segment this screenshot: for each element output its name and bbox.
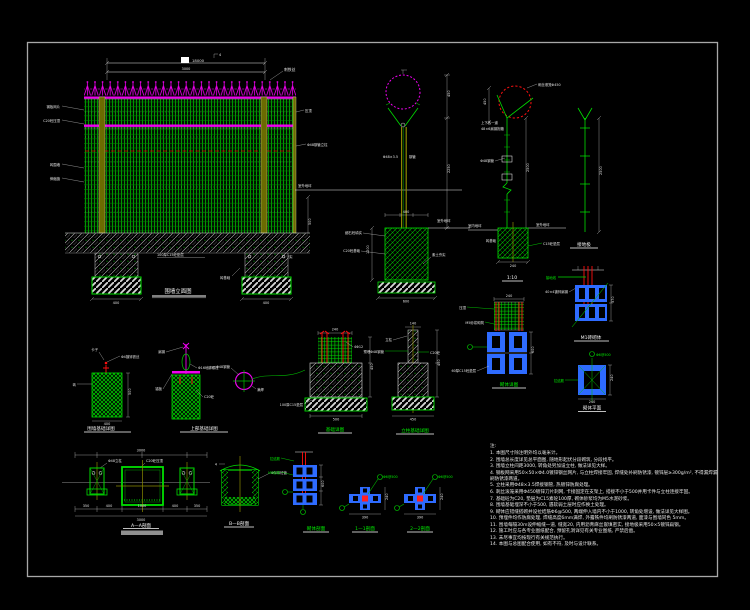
dim-footing-bottom: 600 [403, 300, 409, 304]
caption-foundation-d: 基础详图 [326, 426, 345, 433]
label-mortar: M5砂浆 [268, 470, 280, 475]
razor-coil-circle [386, 75, 420, 109]
dim-aa-s2: 400 [106, 504, 112, 508]
caption-small-plan: 砌体平面 [583, 405, 602, 412]
label-brick: 砖 [73, 382, 77, 387]
grounding-rod-detail: 2500 接地极 [570, 108, 603, 248]
dim-fence-total: 18000 [192, 58, 205, 63]
scale-bar [121, 531, 163, 536]
masonry-section-detail: 拉结筋 M5砂浆 600 砌体剖面 [268, 452, 329, 532]
dim-fe-h: 400 [437, 360, 441, 366]
dim-footing-top: 400 [403, 210, 409, 214]
label-clamp1: 上下各一道 [481, 120, 499, 125]
dim-fence-height: 500 [308, 219, 312, 225]
dim-rod-length: 2500 [599, 166, 603, 175]
cushion-strip [392, 397, 434, 410]
label-brick-base: 砖基础 [486, 238, 497, 243]
label-clamp2: 48×6扁钢抱箍 [481, 126, 504, 131]
post-core [362, 496, 368, 502]
fence-footing-right: 400 [240, 253, 293, 305]
note-line: 2. 围墙总长度详见总平面图, 随地形起伏分段砌筑, 分段找平。 [490, 458, 718, 464]
dim-fa-w: 400 [104, 422, 110, 426]
post-core [417, 496, 423, 502]
section-bb-pipe: 4 Φ300砼管 B—B剖面 [215, 456, 288, 527]
dim-fd-top: 240 [332, 328, 338, 332]
foundation-detail-d: 240 4Φ12 100厚C15垫层 450 500 基础详图 [280, 328, 374, 434]
label-wire: Φ4镀锌铁丝 [121, 354, 140, 359]
caption-aa: A—A剖面 [131, 522, 151, 529]
label-ground-outside: 室外地坪 [536, 222, 550, 227]
label-brick-footing: 砖基础 [220, 275, 231, 280]
caption-post-scale: 1:10 [507, 275, 517, 281]
notes-title: 注: [490, 444, 718, 450]
label-bars: 4Φ12 [354, 345, 363, 349]
label-bb-tick: 4 [215, 463, 217, 467]
label-weld: 满焊 [257, 387, 264, 392]
plan-detail-2: Φ6@500 390 240 2—2剖面 [395, 475, 453, 533]
label-tie-bar: Φ6@500 [596, 353, 611, 357]
fence-post [261, 97, 267, 233]
label-ground-wire: 接地线 [546, 275, 557, 280]
razor-spike-band [84, 81, 296, 97]
label-barbed-wire: 刺铁丝 [284, 67, 296, 72]
caption-fence-elevation: 围墙立面图 [165, 287, 192, 295]
note-line: 4. 钢板网采用50×50×Φ4.0镀锌钢丝网片, 与立柱焊接牢固, 焊缝处补刷… [490, 471, 718, 483]
dim-fe-w: 450 [410, 418, 416, 422]
label-concrete: C20砼 [430, 350, 441, 355]
dim-embed-depth: 1200 [366, 245, 370, 254]
label-tie-bar: Φ6@500 [438, 475, 453, 479]
label-floor-inside: 室内地坪 [468, 223, 482, 228]
note-line: 14. 本图与总图配合使用, 如有不符, 及时与设计联系。 [490, 542, 718, 548]
label-coping-right: 压顶 [305, 109, 312, 113]
dim-post-h1: 450 [447, 91, 451, 97]
note-line: 8. 围墙基础埋深不小于500, 遇软弱土层时应作换土处理。 [490, 503, 718, 509]
caption-foundation-a: 围墙基础详图 [87, 425, 115, 432]
label-pipe: 钢管 [409, 154, 416, 159]
dim-m1-height: 370 [611, 297, 615, 303]
label-razor-cage: 刺丝滚笼Φ450 [538, 82, 561, 87]
concrete-footing [398, 363, 428, 397]
caption-plan1: 1—1剖面 [355, 525, 375, 532]
label-post: 立柱 [385, 337, 392, 342]
note-line: 10. 预埋件均作防腐处理, 焊缝高度6mm满焊, 外露铁件均刷防锈漆两道, 面… [490, 516, 718, 522]
label-pipe-size: Φ48×3.5 [383, 155, 398, 159]
label-coping: C20砼压顶 [43, 118, 60, 123]
notes-list: 1. 本图尺寸除注明外均以毫米计。2. 围墙总长度详见总平面图, 随地形起伏分段… [490, 451, 718, 548]
dim-p1-w: 390 [362, 516, 368, 520]
label-clip: 卡子 [91, 347, 98, 352]
note-line: 11. 围墙每隔30m设伸缩缝一道, 缝宽20, 内用沥青麻丝嵌填密实, 接地极… [490, 523, 718, 529]
label-soil: 素土夯实 [432, 252, 446, 257]
block-wall-detail: 240 压顶 M5砂浆砌筑 60厚C15砼垫层 600 砌体详图 [451, 294, 535, 388]
dim-aa-total-top: 3000 [137, 449, 146, 453]
label-mortar: M5砂浆砌筑 [465, 320, 484, 325]
fence-post [99, 97, 105, 233]
masonry-plan-small: Φ6@500 拉结筋 240 240 砌体平面 [554, 352, 614, 412]
fence-post-partial [293, 97, 296, 233]
label-ground: 室外地坪 [437, 218, 451, 223]
cushion-strip [378, 282, 435, 293]
dim-block-top: 240 [506, 294, 512, 298]
dim-block-height: 600 [531, 347, 535, 353]
label-concrete: C20砼 [204, 394, 215, 399]
caption-masonry-section: 砌体剖面 [307, 525, 326, 532]
fence-footing-left: 400 [90, 253, 143, 305]
label-coping: 压顶 [459, 306, 466, 310]
dim-fence-seg: 3000 [182, 67, 191, 71]
label-cushion: 100厚C15垫层 [280, 402, 304, 407]
note-line: 12. 施工时应与各专业图纸配合, 预留孔洞详见有关专业图纸, 严禁后凿。 [490, 529, 718, 535]
label-aa-post: Φ48立柱 [108, 458, 122, 463]
caption-plan2: 2—2剖面 [410, 525, 430, 532]
dim-fence-tick: 4 [219, 53, 221, 57]
note-line: 6. 刺丝滚笼采用Φ450镀锌刀片刺网, 卡接固定在支架上, 搭接不小于500并… [490, 490, 718, 496]
masonry-detail-m1: 接地线 40×4镀锌扁钢 370 M1砖砌体 [545, 266, 615, 341]
dim-small-w: 240 [610, 375, 614, 381]
note-line: 3. 围墙立柱间距3000, 转角处另加设立柱, 做法详见大样。 [490, 464, 718, 470]
label-tie-bar: Φ6@500 [383, 475, 398, 479]
concrete-block [172, 375, 200, 419]
plan-detail-1: Φ6@500 390 240 1—1剖面 [340, 475, 398, 533]
label-ground-level: 室外地坪 [298, 183, 312, 188]
dim-p1-h: 240 [385, 494, 389, 500]
dim-fa-h: 500 [128, 389, 132, 395]
foundation-detail-e: 140 立柱 预埋Φ48钢管 C20砼 400 450 立柱基础详图 [363, 322, 441, 435]
note-line: 1. 本图尺寸除注明外均以毫米计。 [490, 451, 718, 457]
caption-m1: M1砖砌体 [581, 334, 602, 341]
dim-arm: 450 [483, 99, 487, 105]
dim-footing: 240 [510, 264, 516, 268]
note-line: 7. 基础砼为C20, 垫层为C15素砼100厚, 砌体砂浆均为M5水泥砂浆。 [490, 497, 718, 503]
dim-fe-top: 140 [410, 322, 416, 326]
dim-aa-s1: 350 [83, 504, 89, 508]
brick-block [92, 373, 122, 417]
caption-foundation-e: 立柱基础详图 [401, 427, 429, 434]
label-embed-steel: 40×4镀锌扁钢 [545, 289, 568, 294]
label-concrete-base: C20砼基础 [343, 248, 360, 253]
label-cushion: 60厚C15砼垫层 [451, 368, 476, 373]
post-symbol-left [87, 462, 107, 500]
label-cushion: 100厚C15砼垫层 [157, 252, 184, 257]
ground-hatch-band [65, 234, 310, 253]
label-steel-post: Φ48钢管立柱 [307, 142, 328, 147]
pipe-section-detail: Φ48钢管 满焊 [216, 364, 305, 392]
label-tie: 拉结筋 [554, 378, 565, 383]
concrete-footing [310, 363, 362, 397]
dim-aa-s5: 350 [194, 504, 200, 508]
cad-drawing-canvas: 18000 3000 4 刺铁丝 钢板网片 C20砼压顶 砖围墙 伸缩缝 压顶 … [0, 0, 750, 610]
dim-post-h2: 2250 [447, 164, 451, 173]
caption-foundation-b: 上部基础详图 [190, 425, 218, 432]
label-cushion: C15砼垫层 [543, 241, 560, 246]
label-pipe: Φ48钢管 [216, 364, 230, 369]
caption-block-detail: 砌体详图 [500, 381, 519, 388]
post-symbol-right [177, 462, 197, 500]
label-embed-pipe: 预埋Φ48钢管 [363, 349, 384, 354]
dim-aa-s3: 1000 [138, 504, 147, 508]
foundation-detail-b: 扁钢 Φ16地脚螺栓 锚板 C20砼 上部基础详图 [155, 343, 228, 432]
caption-ground-rod: 接地极 [577, 241, 591, 248]
dim-fd-h: 450 [370, 364, 374, 370]
label-expansion-joint: 伸缩缝 [50, 176, 61, 181]
label-fill: 细石砼填实 [345, 230, 363, 235]
coping-mesh [494, 302, 524, 330]
label-brick-wall: 砖围墙 [50, 162, 61, 167]
post-detail-right: 刺丝滚笼Φ450 450 上下各一道 48×6扁钢抱箍 Φ48钢管 2500 室… [468, 82, 566, 281]
dim-aa-s4: 400 [172, 504, 178, 508]
section-aa-plan: 3000 Φ48立柱 C20砼压顶 350 400 1000 400 350 3… [62, 449, 210, 536]
dim-fd-w: 500 [333, 418, 339, 422]
label-tie: 拉结筋 [270, 456, 281, 461]
label-anchor-plate: 锚板 [155, 386, 162, 391]
label-mesh: 钢板网片 [46, 104, 60, 109]
label-flat-steel: 扁钢 [158, 349, 165, 354]
note-line: 9. 砌体应错缝搭砌并设拉结筋Φ6@500, 两端伸入墙内不小于1000, 转角… [490, 510, 718, 516]
dim-p2-w: 390 [417, 516, 423, 520]
dim-footing-width: 400 [263, 301, 269, 305]
dim-p2-h: 240 [440, 494, 444, 500]
razor-coil-circle-red [499, 86, 531, 118]
dim-small-b: 240 [589, 400, 595, 404]
caption-bb: B—B剖面 [229, 520, 249, 527]
general-notes: 注: 1. 本图尺寸除注明外均以毫米计。2. 围墙总长度详见总平面图, 随地形起… [490, 444, 718, 549]
dim-post-height: 2500 [526, 163, 530, 172]
foundation-detail-a: 卡子 Φ4镀锌铁丝 砖 500 400 围墙基础详图 [73, 347, 140, 432]
post-detail-middle: Φ48×3.5 钢管 450 2250 400 室外地坪 细石砼填实 C20砼基… [343, 70, 470, 304]
note-line: 5. 立柱采用Φ48×3.5焊接钢管, 热镀锌防腐处理。 [490, 483, 718, 489]
dim-footing-width: 400 [113, 301, 119, 305]
cushion-strip [305, 398, 367, 411]
post-footing-block [385, 228, 428, 280]
dim-sec-h: 600 [321, 481, 325, 487]
label-aa-coping: C20砼压顶 [146, 458, 163, 463]
dim-aa-total-bottom: 3000 [137, 518, 146, 522]
label-pipe: Φ48钢管 [480, 158, 494, 163]
